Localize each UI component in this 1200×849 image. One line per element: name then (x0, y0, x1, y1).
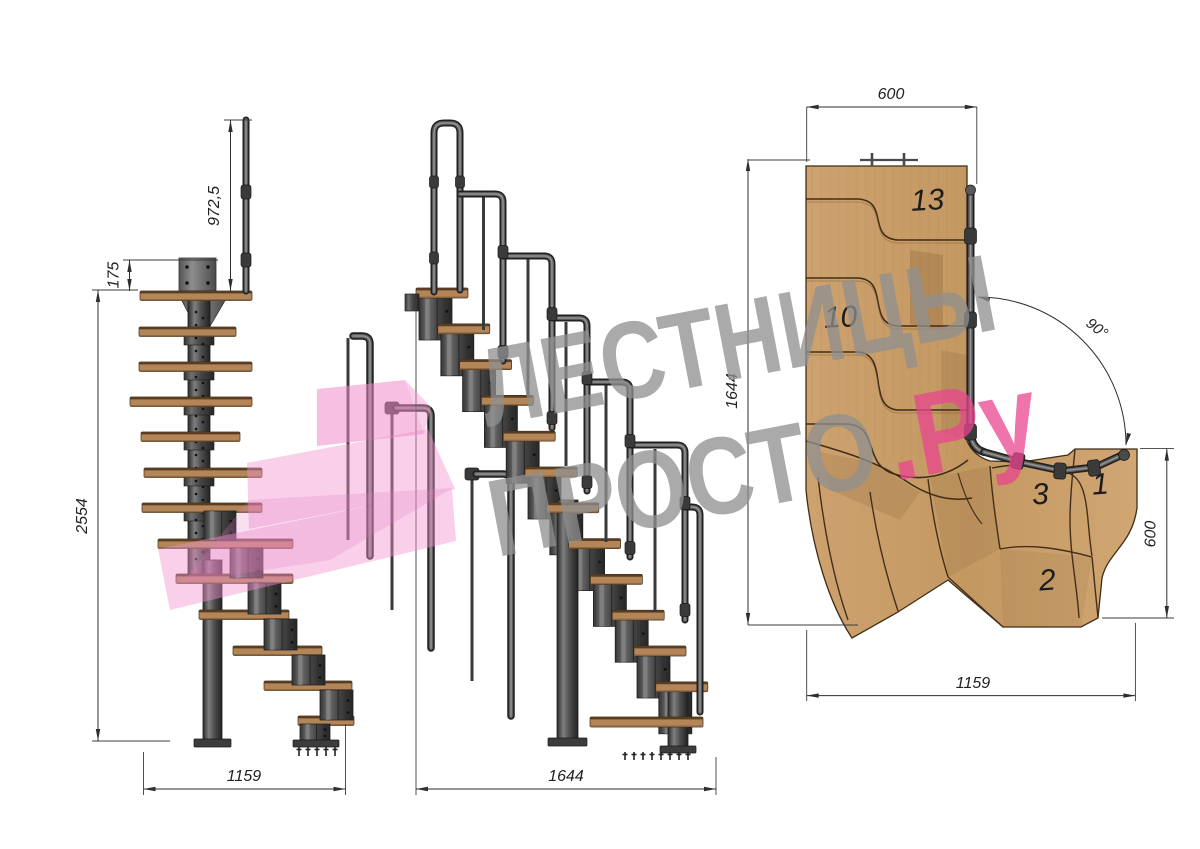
svg-text:1644: 1644 (548, 768, 584, 785)
svg-text:600: 600 (1143, 521, 1160, 548)
svg-text:3: 3 (1031, 477, 1050, 511)
svg-text:175: 175 (106, 262, 123, 289)
svg-text:.Ру: .Ру (875, 349, 1049, 506)
svg-text:1159: 1159 (956, 675, 991, 692)
svg-text:13: 13 (910, 183, 945, 218)
svg-text:2: 2 (1037, 563, 1057, 597)
svg-text:1159: 1159 (227, 768, 262, 785)
svg-text:972,5: 972,5 (206, 186, 223, 226)
svg-text:600: 600 (878, 86, 905, 103)
svg-text:2554: 2554 (74, 498, 91, 535)
